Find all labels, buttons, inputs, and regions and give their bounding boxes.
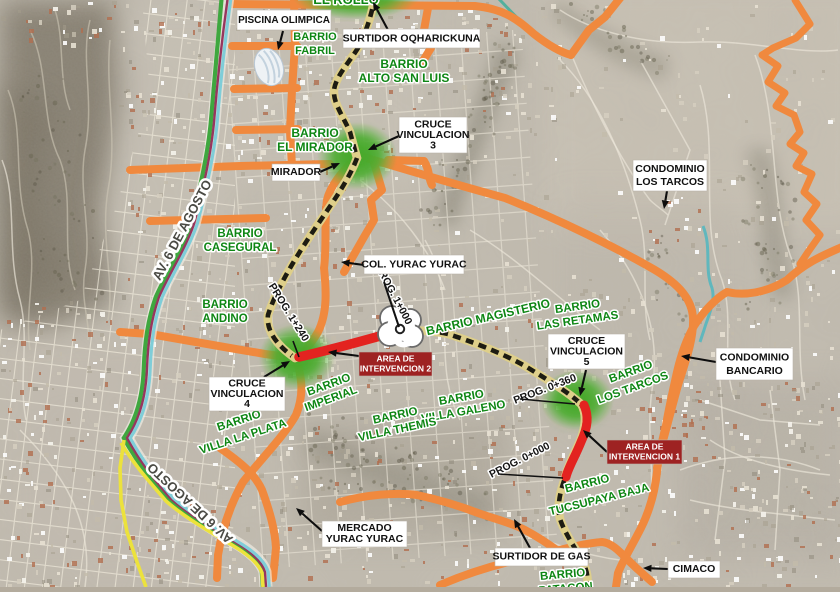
svg-text:3: 3 [430, 140, 436, 152]
svg-text:MIRADOR: MIRADOR [271, 166, 322, 178]
svg-text:BANCARIO: BANCARIO [726, 365, 783, 377]
svg-text:INTERVENCION 2: INTERVENCION 2 [360, 364, 431, 374]
svg-text:BARRIO: BARRIO [293, 31, 337, 43]
svg-text:ANDINO: ANDINO [202, 313, 247, 325]
svg-text:INTERVENCION 1: INTERVENCION 1 [609, 452, 680, 462]
svg-text:PISCINA OLIMPICA: PISCINA OLIMPICA [238, 15, 330, 26]
svg-text:YURAC YURAC: YURAC YURAC [326, 533, 404, 545]
svg-text:LOS TARCOS: LOS TARCOS [636, 176, 704, 188]
svg-text:SURTIDOR OQHARICKUNA: SURTIDOR OQHARICKUNA [343, 32, 481, 44]
svg-text:EL ROLLO: EL ROLLO [313, 0, 378, 7]
svg-text:BARRIO: BARRIO [291, 126, 338, 140]
svg-text:BARRIO: BARRIO [380, 57, 427, 71]
svg-text:EL MIRADOR: EL MIRADOR [277, 140, 353, 154]
svg-text:AREA DE: AREA DE [377, 353, 415, 363]
svg-text:CIMACO: CIMACO [673, 563, 716, 575]
svg-text:CONDOMINIO: CONDOMINIO [635, 163, 704, 175]
svg-text:ALTO SAN LUIS: ALTO SAN LUIS [359, 71, 450, 85]
svg-text:BARRIO: BARRIO [202, 299, 247, 311]
svg-text:COL. YURAC YURAC: COL. YURAC YURAC [361, 258, 467, 270]
svg-text:BARRIO: BARRIO [217, 228, 262, 240]
svg-text:4: 4 [244, 398, 250, 410]
svg-text:AREA DE: AREA DE [626, 441, 664, 451]
svg-text:CASEGURAL: CASEGURAL [204, 242, 277, 254]
svg-text:CONDOMINIO: CONDOMINIO [720, 351, 789, 363]
svg-text:FABRIL: FABRIL [295, 45, 335, 57]
svg-text:SURTIDOR DE GAS: SURTIDOR DE GAS [492, 551, 590, 563]
svg-text:5: 5 [584, 356, 590, 368]
